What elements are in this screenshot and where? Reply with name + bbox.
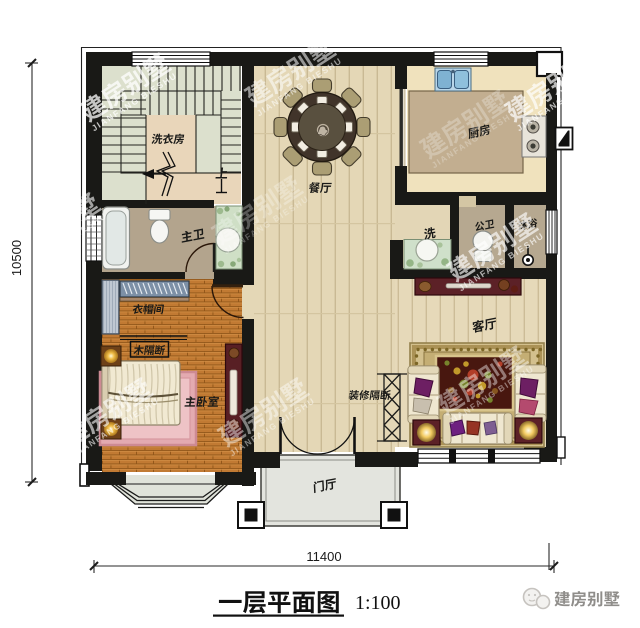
svg-text:11400: 11400 [306,549,341,564]
svg-text:1:100: 1:100 [355,592,401,614]
svg-text:10500: 10500 [9,240,24,276]
